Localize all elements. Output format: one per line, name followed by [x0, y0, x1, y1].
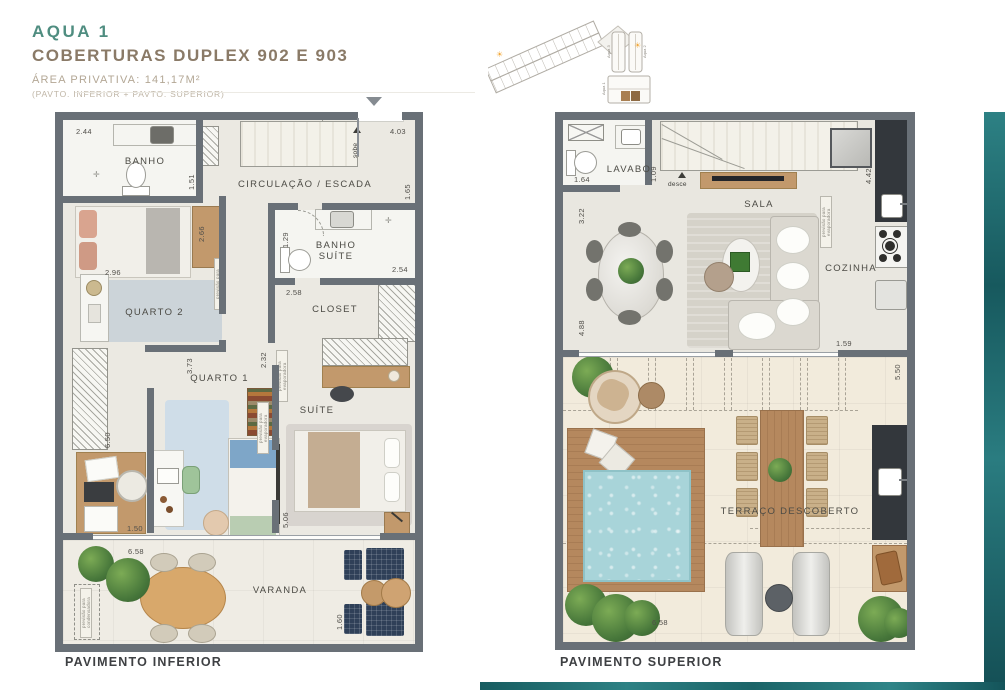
sofa-cushion	[776, 226, 810, 254]
pergola-column	[800, 358, 808, 410]
dim: 1.29	[281, 228, 290, 248]
wall	[563, 350, 579, 357]
wall	[272, 365, 279, 450]
dim: 1.09	[649, 162, 658, 182]
wall	[907, 112, 915, 650]
dim: 6.58	[652, 618, 668, 627]
table-plant	[618, 258, 644, 284]
room-label-varanda: VARANDA	[242, 585, 318, 596]
dim: 4.03	[390, 127, 406, 136]
wall	[268, 203, 275, 278]
dim: 2.54	[392, 265, 408, 274]
site-key-plan: Aqua 3 Aqua 2 Aqua 1 ☀ ☀	[488, 0, 673, 110]
varanda-side-table	[381, 578, 411, 608]
quarto1-footblanket	[230, 516, 276, 536]
terraco-chair	[736, 416, 758, 445]
wall	[145, 345, 226, 352]
sofa-cushion	[738, 312, 776, 340]
sofa-cushion	[776, 262, 810, 290]
desk-laptop	[84, 482, 114, 502]
dim: 2.96	[105, 268, 121, 277]
pergola-column	[838, 358, 846, 410]
header-rule	[75, 92, 475, 93]
wall	[320, 278, 415, 285]
room-label-banho: BANHO	[105, 156, 185, 167]
entry-door-leaf	[357, 118, 359, 156]
varanda-chair	[150, 624, 178, 643]
varanda-lounge-chair	[344, 550, 362, 580]
dim: 2.66	[197, 222, 206, 242]
lavabo-sink	[621, 129, 641, 145]
aqua1-label: Aqua 1	[601, 82, 606, 95]
terraco-table-plant	[768, 458, 792, 482]
lavabo-shaft	[568, 124, 604, 141]
pergola-column	[686, 358, 694, 410]
evaporadora-note: previsão para evaporadora	[820, 196, 832, 248]
superior-title: PAVIMENTO SUPERIOR	[560, 655, 723, 669]
stairs-up	[240, 121, 358, 167]
varanda-lounge-chair	[366, 548, 404, 580]
sliding-door-glass	[579, 352, 715, 357]
tv	[712, 176, 784, 181]
dim: 3.73	[185, 354, 194, 374]
stairs-down	[660, 121, 858, 171]
wall	[555, 642, 915, 650]
pergola-column	[724, 358, 732, 410]
burner	[879, 254, 887, 262]
suite-blanket	[308, 432, 360, 508]
lounger-side-table	[765, 584, 793, 612]
suite-pillow	[384, 472, 400, 502]
desk-papers	[85, 456, 120, 482]
wall	[380, 533, 415, 540]
terraco-chair	[806, 452, 828, 481]
lavabo-toilet-bowl	[574, 151, 597, 174]
dim: 1.60	[335, 610, 344, 630]
terraco-chair	[806, 416, 828, 445]
closet-hatch-band	[322, 338, 408, 366]
room-label-quarto1: QUARTO 1	[182, 373, 257, 384]
private-area-text: ÁREA PRIVATIVA: 141,17M²	[32, 74, 201, 86]
sun-lounger	[792, 552, 830, 636]
dining-chair	[656, 240, 673, 263]
desk-chair	[116, 470, 148, 502]
dining-chair	[586, 278, 603, 301]
teal-bottom-band	[480, 682, 1005, 690]
sofa-cushion	[776, 298, 810, 326]
dim: 1.50	[127, 524, 143, 533]
tower-left-label: Aqua 3	[606, 45, 611, 58]
sun-icon: ☀	[496, 50, 503, 59]
entry-opening-gap	[358, 112, 402, 120]
room-label-suite: SUÍTE	[292, 405, 342, 416]
dim: 2.58	[286, 288, 302, 297]
terraco-chair	[736, 452, 758, 481]
plant	[106, 558, 150, 602]
project-name: AQUA 1	[32, 22, 111, 42]
varanda-table	[140, 567, 226, 629]
dim: 4.42	[864, 164, 873, 184]
highlighted-unit	[631, 91, 640, 101]
long-building	[488, 21, 604, 93]
wall	[196, 120, 203, 203]
kitchen-sink	[881, 194, 903, 218]
banho-faucet-icon: ✛	[93, 170, 100, 179]
burner	[885, 241, 895, 251]
wall	[55, 112, 63, 652]
pouf	[638, 382, 665, 409]
teal-side-band	[984, 112, 1005, 690]
wall	[63, 533, 93, 540]
wall	[415, 112, 423, 652]
dining-chair	[618, 222, 641, 237]
wall	[55, 644, 423, 652]
sliding-door-glass	[93, 535, 380, 540]
evaporadora-note: previsão para evaporadora	[257, 402, 269, 454]
dim: 6.58	[128, 547, 144, 556]
desce-arrow-icon	[678, 172, 686, 178]
varanda-chair	[150, 553, 178, 572]
outdoor-sink	[878, 468, 902, 496]
side-table	[704, 262, 734, 292]
highlighted-unit	[621, 91, 630, 101]
desk-printer	[84, 506, 118, 532]
oven	[875, 280, 907, 310]
quarto2-pillow	[79, 242, 97, 270]
wall	[322, 203, 415, 210]
varanda-chair	[188, 553, 216, 572]
wall	[563, 185, 620, 192]
floors-subtitle: (PAVTO. INFERIOR + PAVTO. SUPERIOR)	[32, 89, 225, 99]
dim: 1.59	[836, 339, 852, 348]
quarto2-mirror	[86, 280, 102, 296]
fridge	[830, 128, 872, 168]
suite-pillow	[384, 438, 400, 468]
burner	[893, 254, 901, 262]
wall	[63, 196, 203, 203]
wall	[555, 112, 915, 120]
shaft-hatch	[201, 126, 219, 166]
wall	[272, 500, 279, 533]
dim: 3.22	[577, 204, 586, 224]
wall	[555, 112, 563, 650]
room-label-closet: CLOSET	[300, 304, 370, 315]
floorplan-sheet: AQUA 1 COBERTURAS DUPLEX 902 E 903 ÁREA …	[0, 0, 1005, 690]
quarto1-chair	[182, 466, 200, 494]
sun-lounger	[725, 552, 763, 636]
room-label-terraco: TERRAÇO DESCOBERTO	[705, 506, 875, 517]
suite-faucet-icon: ✛	[385, 216, 392, 225]
varanda-chair	[188, 624, 216, 643]
dining-chair	[618, 310, 641, 325]
varanda-lounge-chair	[344, 604, 362, 634]
wall	[147, 388, 154, 533]
suite-deco	[388, 370, 400, 382]
desce-label: desce	[668, 181, 687, 188]
inferior-title: PAVIMENTO INFERIOR	[65, 655, 222, 669]
burner	[879, 230, 887, 238]
suite-vanity-chair	[330, 386, 354, 402]
coffee-table-plant	[730, 252, 750, 272]
dim: 2.32	[259, 348, 268, 368]
room-label-quarto2: QUARTO 2	[112, 307, 197, 318]
dining-chair	[586, 240, 603, 263]
quarto1-desk	[153, 450, 184, 527]
dining-chair	[656, 278, 673, 301]
dim: 5.50	[893, 360, 902, 380]
room-label-banho-suite: BANHO SUÍTE	[306, 241, 366, 263]
condensadora-note: previsão para condensadora	[80, 588, 92, 638]
tower-right-label: Aqua 2	[642, 45, 647, 58]
wall	[268, 278, 295, 285]
room-label-circulacao: CIRCULAÇÃO / ESCADA	[230, 179, 380, 190]
quarto2-pillow	[79, 210, 97, 238]
quarto2-tray	[88, 304, 101, 323]
sun-icon: ☀	[634, 41, 641, 50]
quarto1-pillow	[230, 440, 276, 468]
room-label-sala: SALA	[735, 199, 783, 210]
page-title: COBERTURAS DUPLEX 902 E 903	[32, 46, 348, 66]
burner	[893, 230, 901, 238]
wall	[715, 350, 733, 357]
banho-sink	[150, 126, 174, 144]
coffee-dot	[160, 496, 167, 503]
banho-suite-sink	[330, 211, 354, 228]
quarto2-throw	[146, 208, 180, 274]
dim: 2.44	[76, 127, 92, 136]
wall	[268, 285, 275, 343]
sliding-door-glass	[733, 352, 838, 357]
quarto1-laptop	[157, 468, 179, 484]
dim: 1.64	[574, 175, 590, 184]
coffee-dot	[166, 506, 173, 513]
dim: 5.06	[281, 508, 290, 528]
wall	[838, 350, 907, 357]
dim: 4.88	[577, 316, 586, 336]
dim: 1.65	[403, 180, 412, 200]
room-label-cozinha: COZINHA	[820, 263, 882, 274]
entry-arrow-icon	[366, 97, 382, 106]
dim: 1.51	[187, 170, 196, 190]
wall	[219, 196, 226, 314]
dim: 6.50	[103, 428, 112, 448]
pergola-column	[762, 358, 770, 410]
closet-hatch-right	[378, 284, 416, 342]
pool	[583, 470, 691, 582]
quarto1-pouf	[203, 510, 229, 536]
